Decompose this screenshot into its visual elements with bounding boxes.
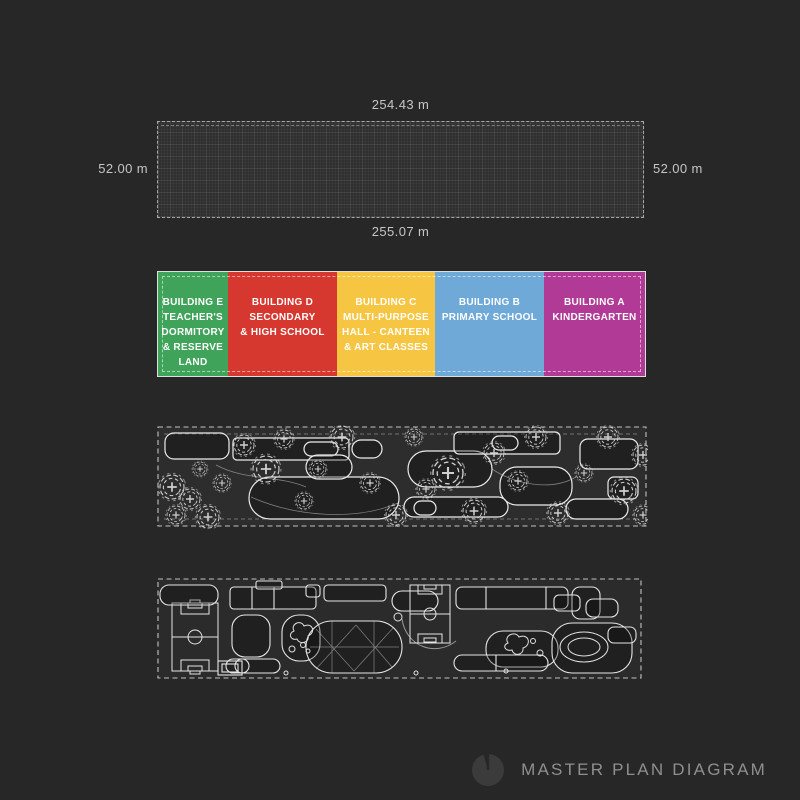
building-legend-bar: BUILDING E TEACHER'S DORMITORY & RESERVE… <box>157 271 646 377</box>
legend-building-a-label: BUILDING A KINDERGARTEN <box>552 295 636 325</box>
legend-building-b-label: BUILDING B PRIMARY SCHOOL <box>442 295 537 325</box>
dimension-right: 52.00 m <box>653 161 733 176</box>
legend-building-c-label: BUILDING C MULTI-PURPOSE HALL - CANTEEN … <box>342 295 430 355</box>
legend-building-e: BUILDING E TEACHER'S DORMITORY & RESERVE… <box>158 272 228 376</box>
legend-building-e-label: BUILDING E TEACHER'S DORMITORY & RESERVE… <box>161 295 224 370</box>
pie-clock-logo-icon <box>471 753 505 787</box>
footer: MASTER PLAN DIAGRAM <box>471 751 767 789</box>
diagram-title: MASTER PLAN DIAGRAM <box>521 760 767 780</box>
master-plan-slide: { "page": { "background": "#272727" }, "… <box>0 0 800 800</box>
dimension-top: 254.43 m <box>157 97 644 112</box>
legend-building-d-label: BUILDING D SECONDARY & HIGH SCHOOL <box>240 295 324 340</box>
landscape-plan-drawing <box>156 425 648 529</box>
dimension-bottom: 255.07 m <box>157 224 644 239</box>
ground-floor-plan-svg <box>156 577 643 681</box>
legend-building-c: BUILDING C MULTI-PURPOSE HALL - CANTEEN … <box>337 272 435 376</box>
landscape-plan-svg <box>156 425 648 529</box>
dimension-left: 52.00 m <box>68 161 148 176</box>
ground-floor-plan-drawing <box>156 577 643 681</box>
legend-building-d: BUILDING D SECONDARY & HIGH SCHOOL <box>228 272 337 376</box>
legend-building-b: BUILDING B PRIMARY SCHOOL <box>435 272 544 376</box>
site-boundary-rect <box>157 121 644 218</box>
legend-building-a: BUILDING A KINDERGARTEN <box>544 272 645 376</box>
